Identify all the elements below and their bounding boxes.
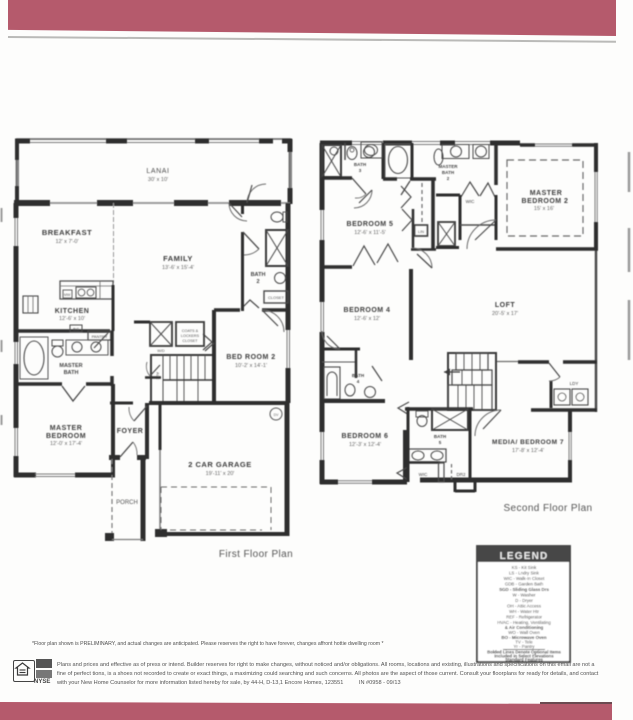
svg-text:BEDROOM 5: BEDROOM 5 (347, 221, 394, 228)
svg-text:LEGEND: LEGEND (500, 551, 549, 562)
svg-text:SGD - Sliding Glass Drs: SGD - Sliding Glass Drs (499, 587, 549, 592)
svg-text:REF - Refrigerator: REF - Refrigerator (506, 615, 542, 620)
svg-text:LOCKERS: LOCKERS (181, 334, 200, 338)
svg-text:2: 2 (256, 279, 259, 285)
svg-text:2: 2 (447, 176, 450, 181)
svg-text:LOFT: LOFT (495, 302, 515, 309)
svg-text:30' x 10': 30' x 10' (148, 177, 168, 183)
svg-text:OH - Attic Access: OH - Attic Access (507, 604, 542, 609)
svg-text:Second Floor Plan: Second Floor Plan (503, 503, 592, 514)
svg-text:WIC: WIC (466, 199, 475, 204)
svg-text:2 CAR GARAGE: 2 CAR GARAGE (188, 460, 252, 469)
svg-text:Yr - Pantry: Yr - Pantry (514, 644, 536, 649)
svg-text:BEDROOM 4: BEDROOM 4 (344, 307, 391, 314)
svg-text:12'-3' x 12'-4': 12'-3' x 12'-4' (349, 442, 381, 448)
svg-text:13'-6' x 15'-4': 13'-6' x 15'-4' (162, 265, 194, 271)
svg-text:LS - Lndry Sink: LS - Lndry Sink (509, 571, 540, 576)
svg-text:10'-2' x 14'-1': 10'-2' x 14'-1' (235, 363, 267, 369)
svg-text:BATH: BATH (64, 370, 79, 376)
svg-text:W/D: W/D (157, 349, 165, 353)
svg-text:MASTER: MASTER (530, 190, 563, 197)
svg-text:4: 4 (357, 379, 360, 384)
svg-text:BED ROOM 2: BED ROOM 2 (226, 354, 275, 361)
svg-text:BEDROOM: BEDROOM (46, 433, 86, 440)
svg-text:12' x 7'-0': 12' x 7'-0' (55, 239, 78, 245)
svg-text:3: 3 (359, 168, 362, 173)
svg-text:BEDROOM 2: BEDROOM 2 (522, 198, 569, 205)
svg-text:DR2: DR2 (456, 472, 465, 477)
svg-text:D - Dryer: D - Dryer (515, 598, 533, 603)
svg-text:MEDIA/ BEDROOM 7: MEDIA/ BEDROOM 7 (492, 439, 564, 446)
svg-text:15' x 16': 15' x 16' (534, 206, 554, 212)
svg-text:KITCHEN: KITCHEN (55, 308, 90, 315)
svg-text:COATS &: COATS & (182, 329, 199, 333)
svg-text:20'-5' x 17': 20'-5' x 17' (492, 311, 518, 317)
svg-text:KS - Kit Sink: KS - Kit Sink (512, 565, 537, 570)
svg-text:WH - Water Htr: WH - Water Htr (509, 609, 539, 614)
svg-text:WIC - Walk-In Closet: WIC - Walk-In Closet (504, 576, 546, 581)
svg-text:MASTER: MASTER (439, 164, 459, 169)
svg-text:12'-6' x 11'-5': 12'-6' x 11'-5' (354, 230, 386, 236)
svg-text:FOYER: FOYER (117, 428, 144, 435)
svg-text:12'-6' x 10': 12'-6' x 10' (59, 316, 85, 322)
svg-text:CLOSET: CLOSET (268, 295, 285, 300)
svg-text:LIN: LIN (418, 230, 424, 234)
svg-text:BATH: BATH (354, 162, 366, 167)
svg-text:BATH: BATH (434, 434, 446, 439)
svg-text:LDY: LDY (570, 381, 579, 386)
svg-text:5: 5 (439, 440, 442, 445)
svg-text:17'-8' x 12'-4': 17'-8' x 12'-4' (512, 448, 544, 454)
svg-text:12'-6' x 12': 12'-6' x 12' (354, 316, 380, 322)
svg-text:CLOSET: CLOSET (182, 339, 198, 343)
svg-text:BATH: BATH (251, 272, 266, 278)
svg-text:WIC: WIC (419, 472, 428, 477)
svg-text:BC: BC (73, 327, 80, 332)
svg-text:W - Washer: W - Washer (512, 593, 536, 598)
svg-text:MW: MW (64, 293, 71, 297)
svg-text:MASTER: MASTER (59, 363, 82, 369)
svg-text:GDB - Garden Bath: GDB - Garden Bath (505, 582, 544, 587)
svg-text:BREAKFAST: BREAKFAST (42, 228, 92, 237)
svg-text:BATH: BATH (442, 170, 454, 175)
svg-text:MASTER: MASTER (50, 425, 83, 432)
svg-text:BATH: BATH (352, 373, 364, 378)
svg-text:BEDROOM 6: BEDROOM 6 (342, 433, 389, 440)
svg-text:First Floor Plan: First Floor Plan (219, 549, 293, 560)
svg-text:12'-0' x 17'-4': 12'-0' x 17'-4' (50, 441, 82, 447)
svg-text:PORCH: PORCH (116, 500, 138, 506)
svg-text:19'-11' x 20': 19'-11' x 20' (206, 471, 235, 477)
svg-text:LANAI: LANAI (146, 168, 169, 175)
svg-text:DV: DV (274, 413, 280, 417)
svg-text:FAMILY: FAMILY (163, 254, 193, 263)
